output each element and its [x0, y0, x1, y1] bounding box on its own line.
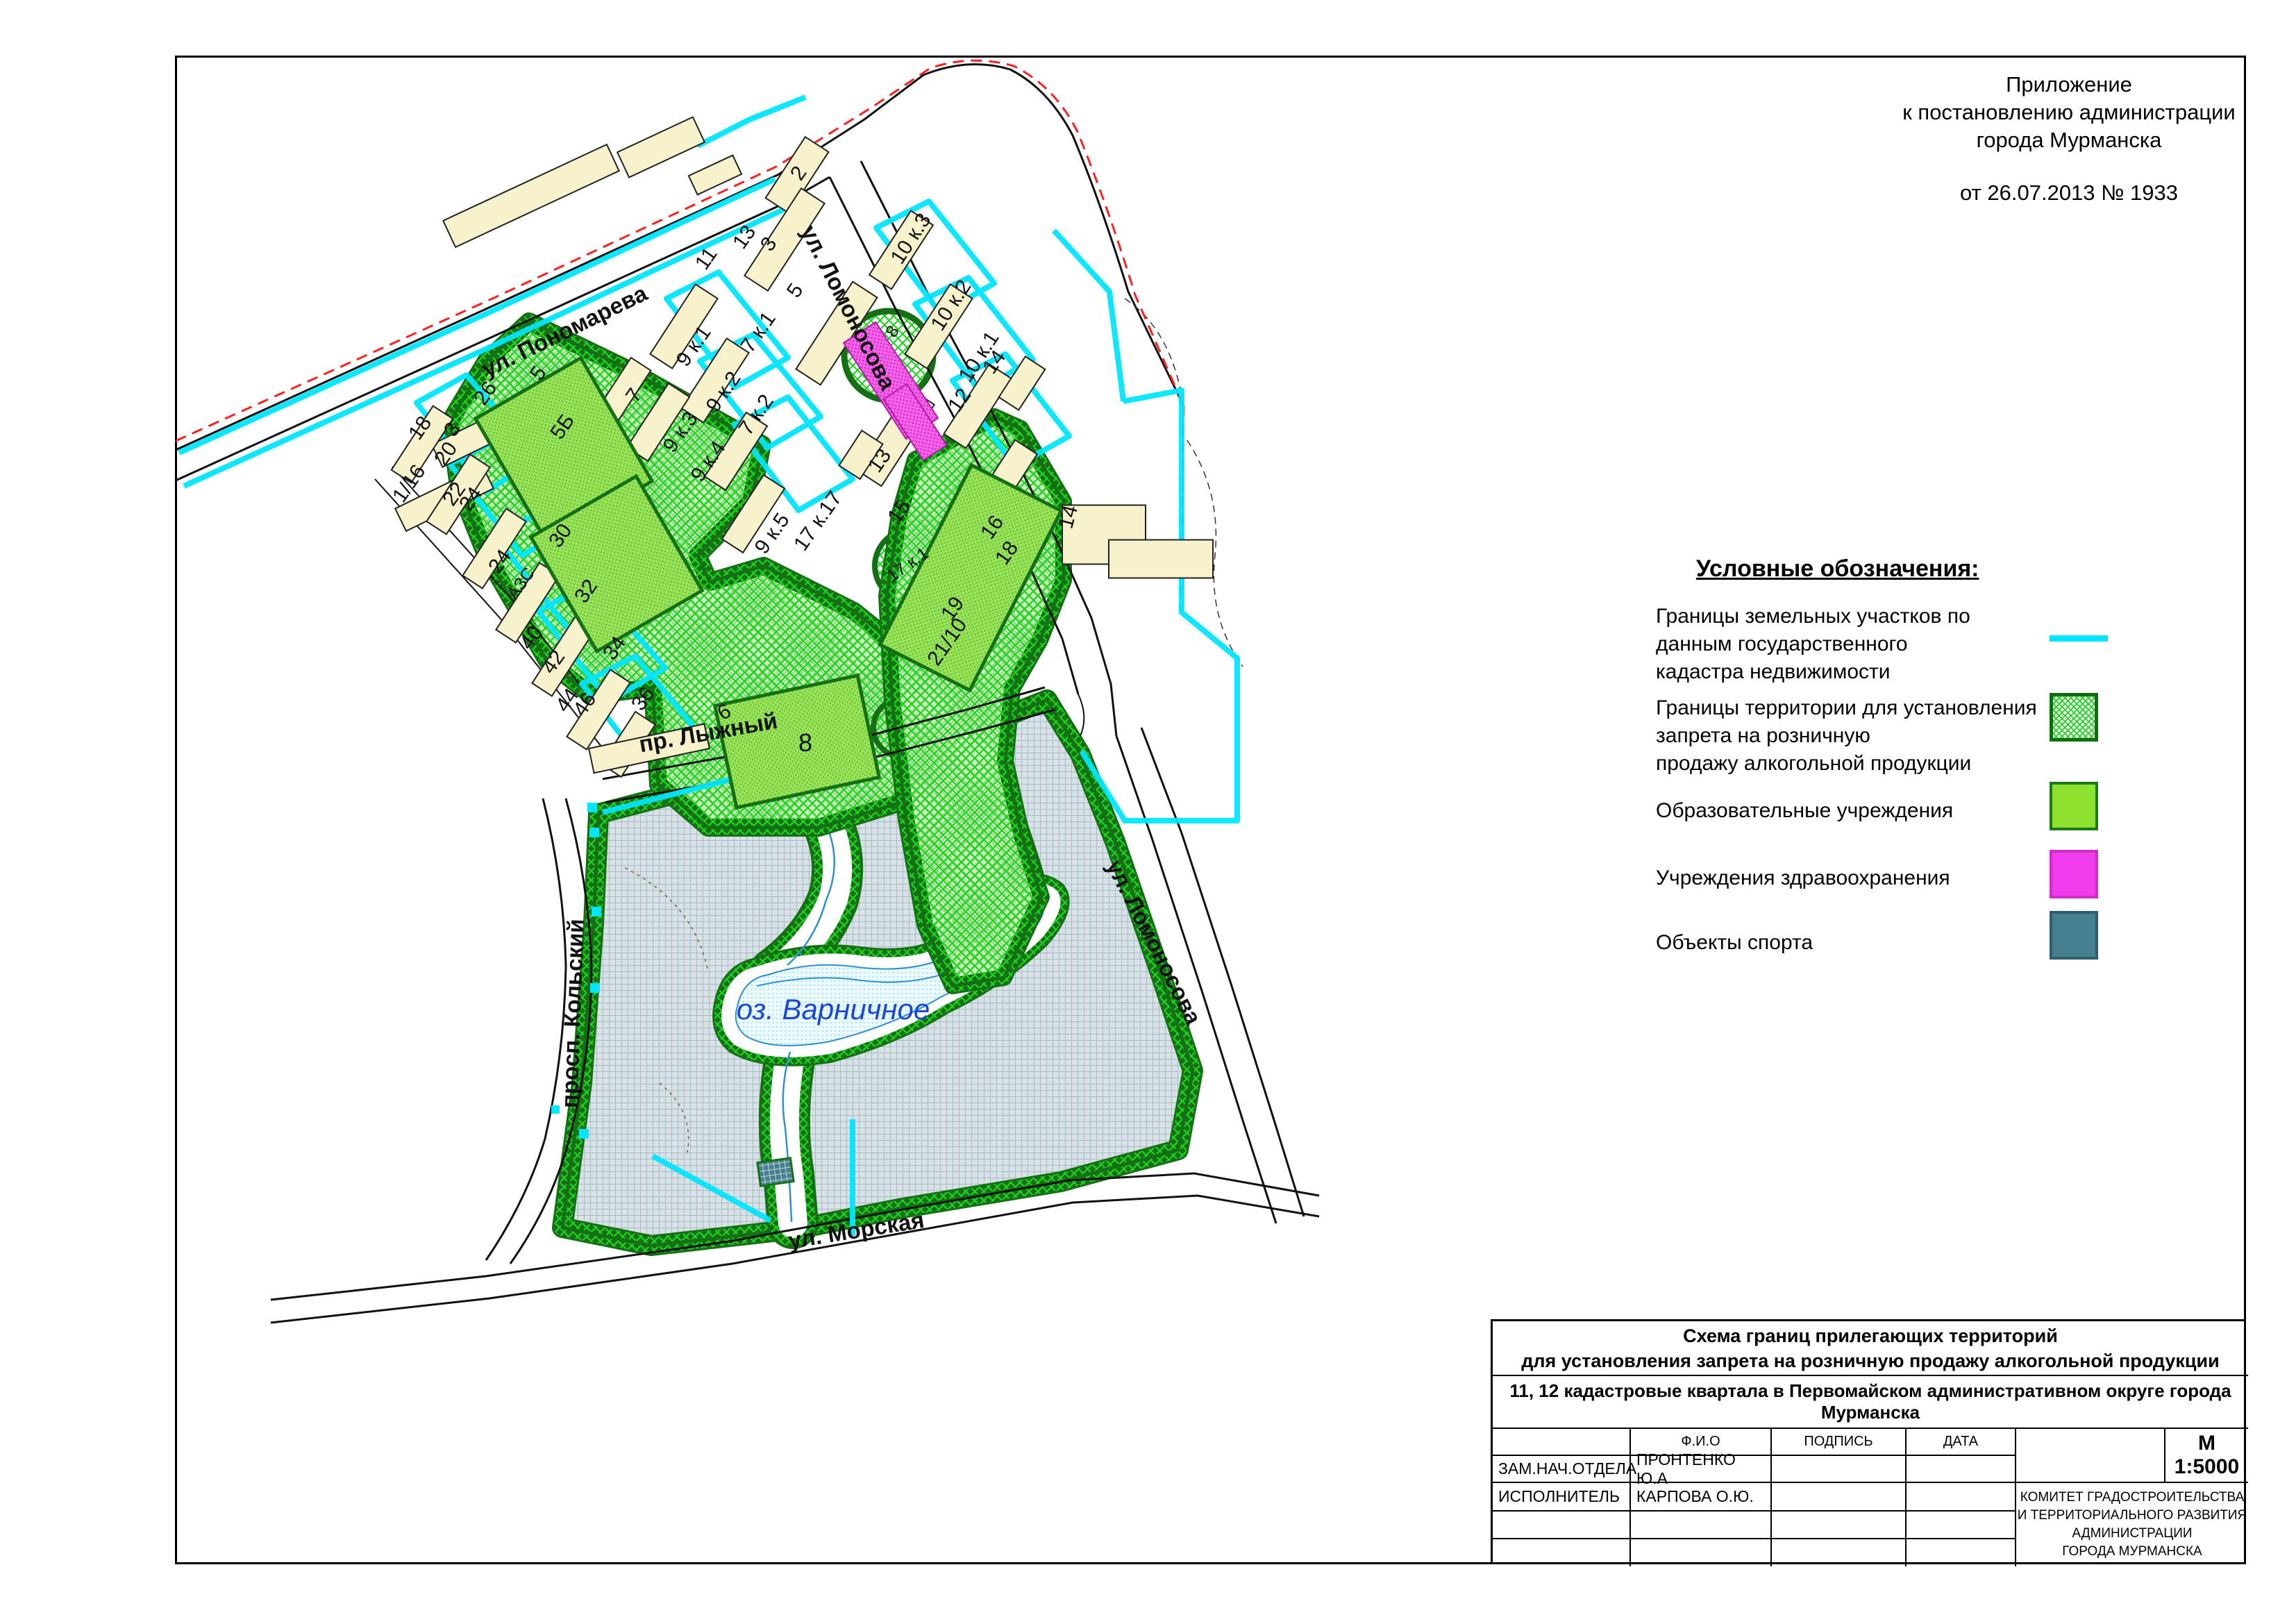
legend-swatch	[2050, 782, 2098, 830]
legend-swatch	[2050, 911, 2098, 960]
legend-item-label: Учреждения здравоохранения	[1656, 864, 2045, 892]
header-date-number: от 26.07.2013 № 1933	[1875, 179, 2263, 207]
grid-cell-empty	[1493, 1428, 1629, 1455]
map-building-res	[1109, 540, 1213, 578]
grid-cell-empty	[2015, 1428, 2164, 1482]
role-zam-nach-otdela: ЗАМ.НАЧ.ОТДЕЛА	[1493, 1455, 1629, 1482]
org-line: ГОРОДА МУРМАНСКА	[2062, 1543, 2202, 1561]
legend-swatch	[2050, 635, 2108, 642]
legend: Условные обозначения: Границы земельных …	[1632, 555, 2173, 583]
empty-row-cell	[1905, 1510, 2015, 1538]
map-scale: М 1:5000	[2164, 1428, 2248, 1482]
signature-cell	[1770, 1482, 1905, 1510]
document-page: ул. Пономареваул. Ломоносоваул. Ломоносо…	[0, 0, 2296, 1624]
column-header-sign: ПОДПИСЬ	[1770, 1428, 1905, 1455]
date-cell	[1905, 1455, 2015, 1482]
legend-item-label: Границы земельных участков поданным госу…	[1656, 603, 2045, 686]
signature-cell	[1770, 1455, 1905, 1482]
fio-prontenko: ПРОНТЕНКО Ю.А	[1629, 1455, 1770, 1482]
legend-swatch	[2050, 850, 2098, 898]
org-line: КОМИТЕТ ГРАДОСТРОИТЕЛЬСТВА	[2020, 1489, 2245, 1507]
header-line: Приложение	[1875, 71, 2263, 99]
map-building-sport	[757, 1158, 794, 1186]
empty-row-cell	[1629, 1510, 1770, 1538]
org-line: И ТЕРРИТОРИАЛЬНОГО РАЗВИТИЯ	[2018, 1507, 2247, 1525]
house-number-label: 8	[798, 728, 812, 757]
empty-row-cell	[1770, 1510, 1905, 1538]
org-line: АДМИНИСТРАЦИИ	[2072, 1525, 2192, 1543]
legend-title: Условные обозначения:	[1696, 555, 2173, 583]
fio-karpova: КАРПОВА О.Ю.	[1629, 1482, 1770, 1510]
role-ispolnitel: ИСПОЛНИТЕЛЬ	[1493, 1482, 1629, 1510]
legend-item-label: Образовательные учреждения	[1656, 797, 2045, 825]
map-building-res	[689, 156, 741, 195]
header-line: к постановлению администрации	[1875, 99, 2263, 126]
empty-row-cell	[1629, 1538, 1770, 1566]
column-header-date: ДАТА	[1905, 1428, 2015, 1455]
date-cell	[1905, 1482, 2015, 1510]
legend-item-label: Границы территории для установлениязапре…	[1656, 694, 2045, 778]
legend-swatch	[2050, 693, 2098, 742]
house-number-label: 5	[782, 279, 808, 302]
legend-item-label: Объекты спорта	[1656, 929, 2045, 957]
title-block: Схема границ прилегающих территорий для …	[1491, 1319, 2246, 1564]
lake-label: оз. Варничное	[737, 993, 930, 1026]
empty-row-cell	[1493, 1510, 1629, 1538]
map-building-res	[443, 144, 619, 247]
header-gap	[1875, 154, 2263, 179]
document-header: Приложение к постановлению администрации…	[1875, 71, 2263, 207]
empty-row-cell	[1770, 1538, 1905, 1566]
empty-row-cell	[1905, 1538, 2015, 1566]
scheme-title-line2: для установления запрета на розничную пр…	[1521, 1348, 2219, 1373]
header-line: города Мурманска	[1875, 126, 2263, 154]
scheme-title-line1: Схема границ прилегающих территорий	[1683, 1323, 2058, 1348]
empty-row-cell	[1493, 1538, 1629, 1566]
map-building-res	[617, 117, 705, 178]
scheme-subtitle: 11, 12 кадастровые квартала в Первомайск…	[1493, 1375, 2248, 1428]
